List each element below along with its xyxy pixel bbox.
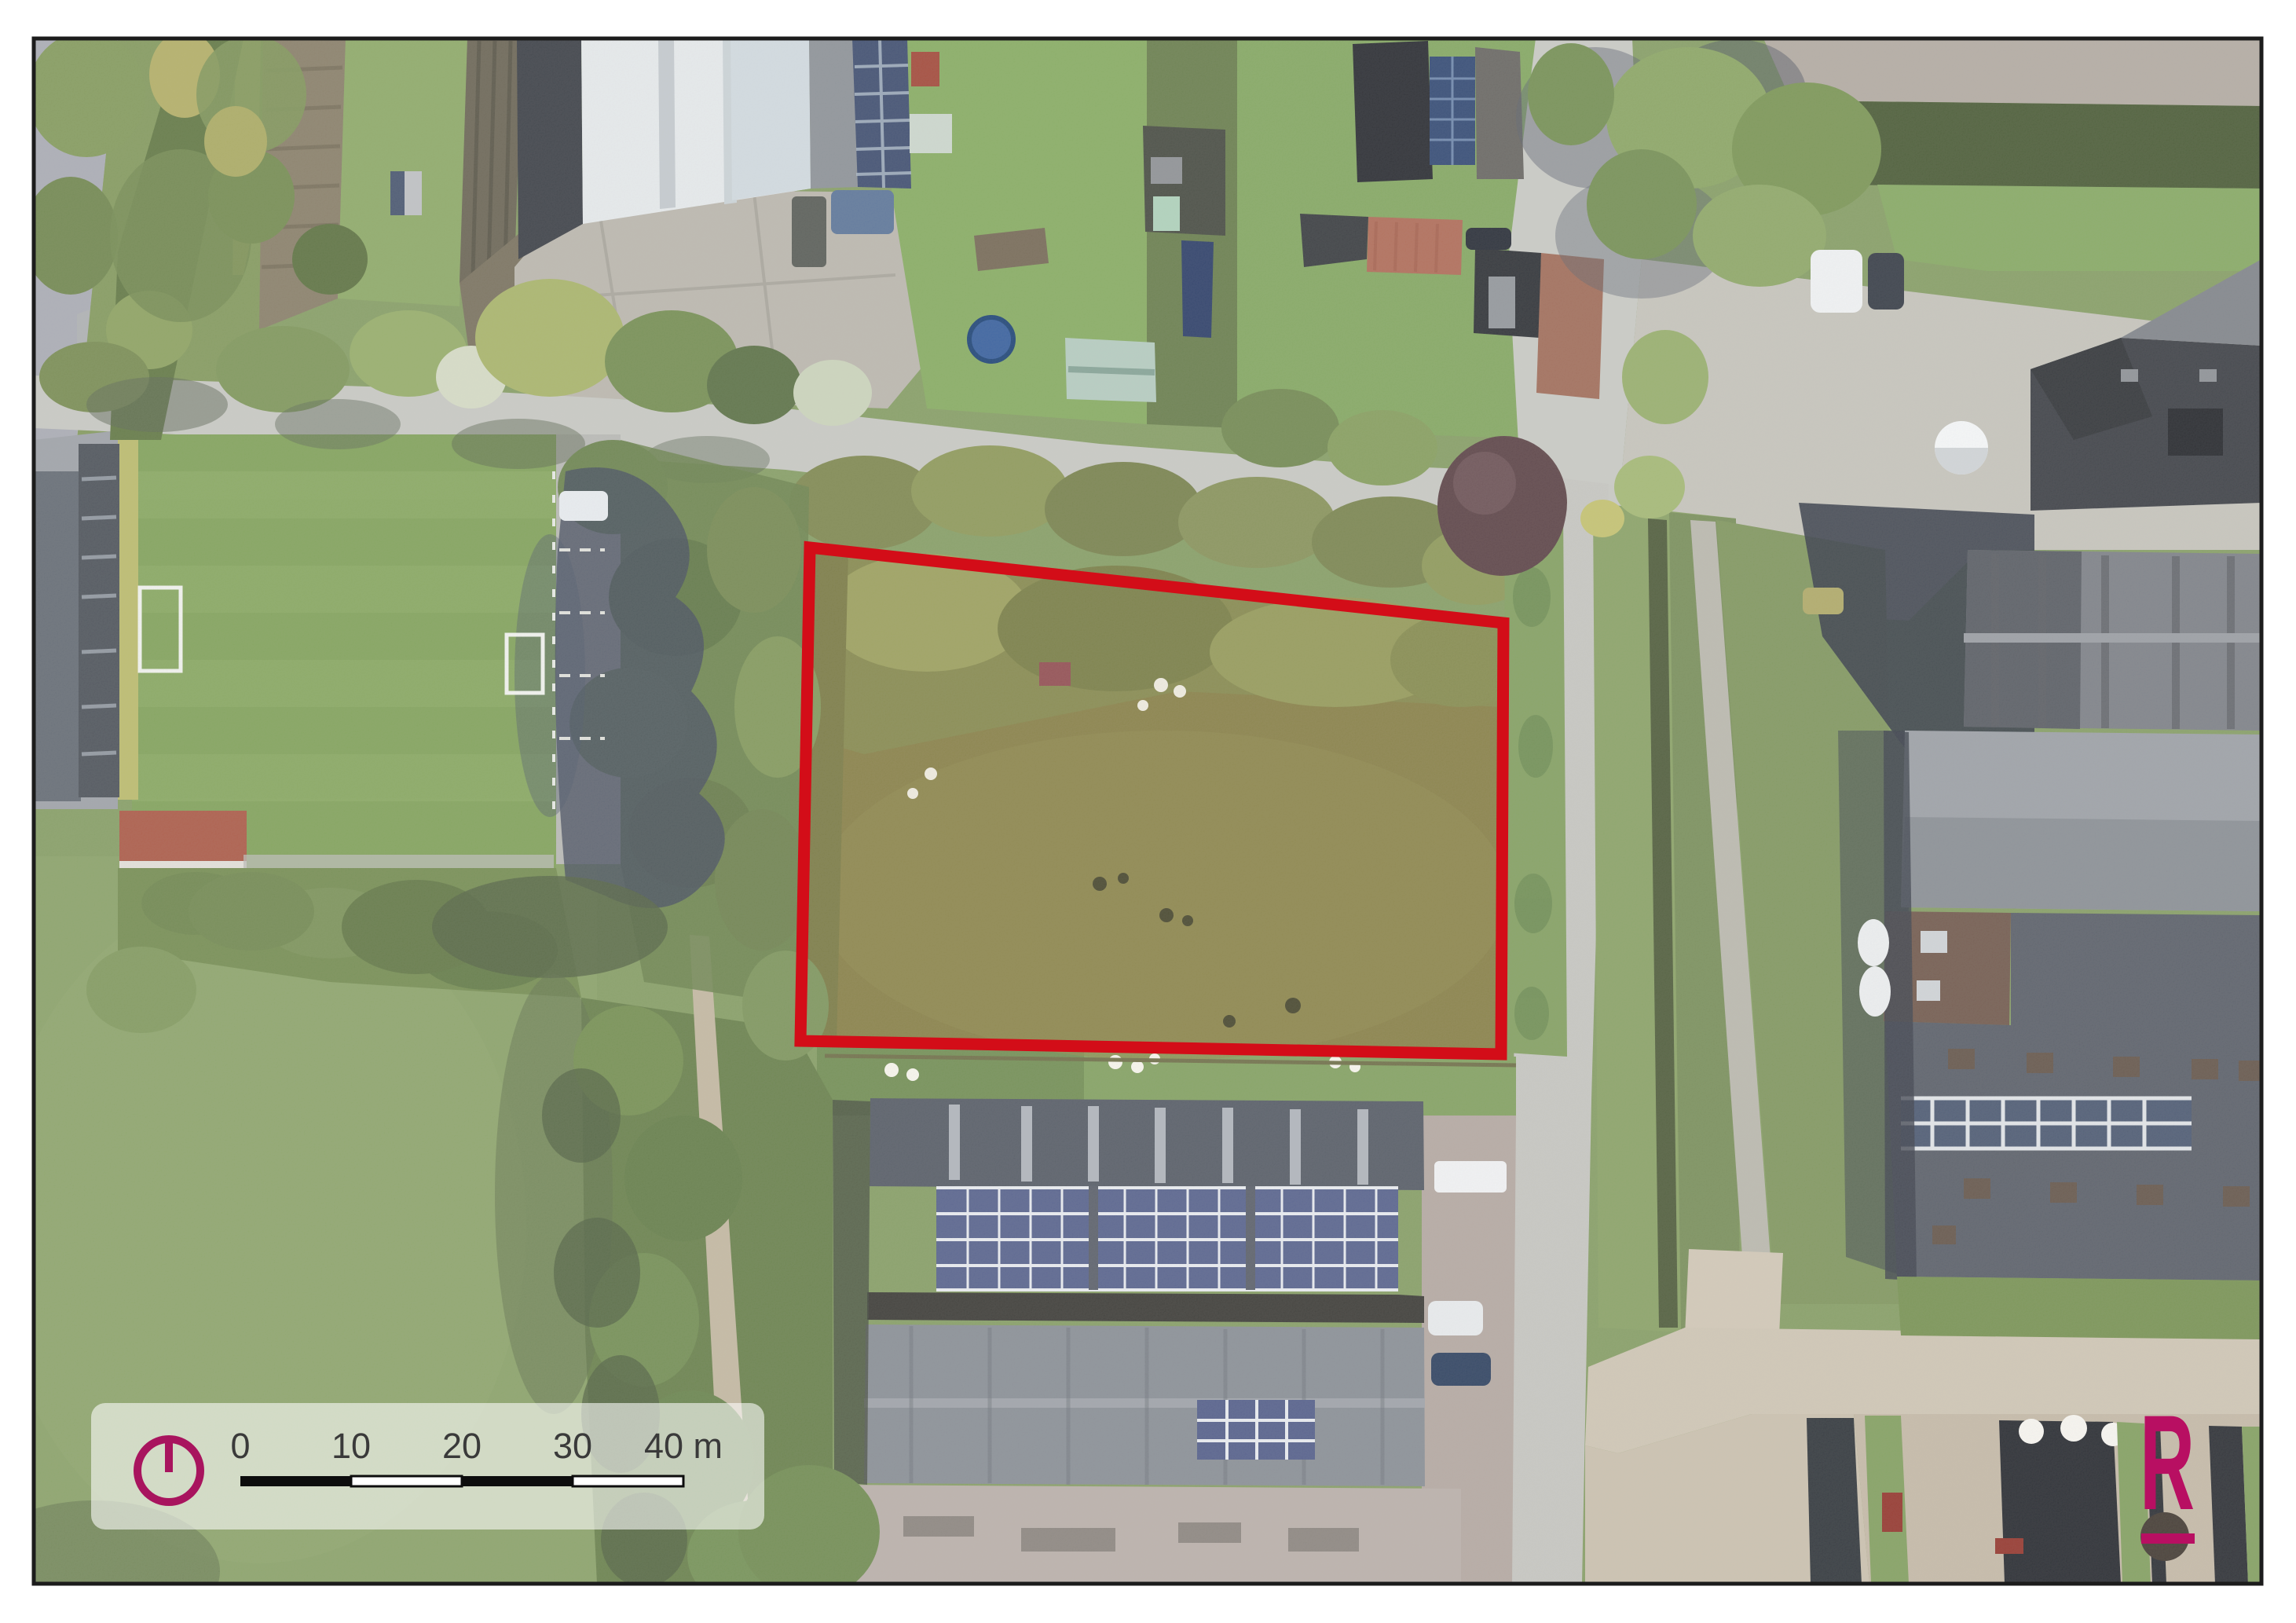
svg-text:10: 10 — [331, 1426, 371, 1466]
svg-text:0: 0 — [230, 1426, 250, 1466]
svg-text:20: 20 — [442, 1426, 482, 1466]
svg-text:30: 30 — [553, 1426, 592, 1466]
svg-text:40 m: 40 m — [644, 1426, 723, 1466]
svg-text:R: R — [2140, 1387, 2195, 1538]
